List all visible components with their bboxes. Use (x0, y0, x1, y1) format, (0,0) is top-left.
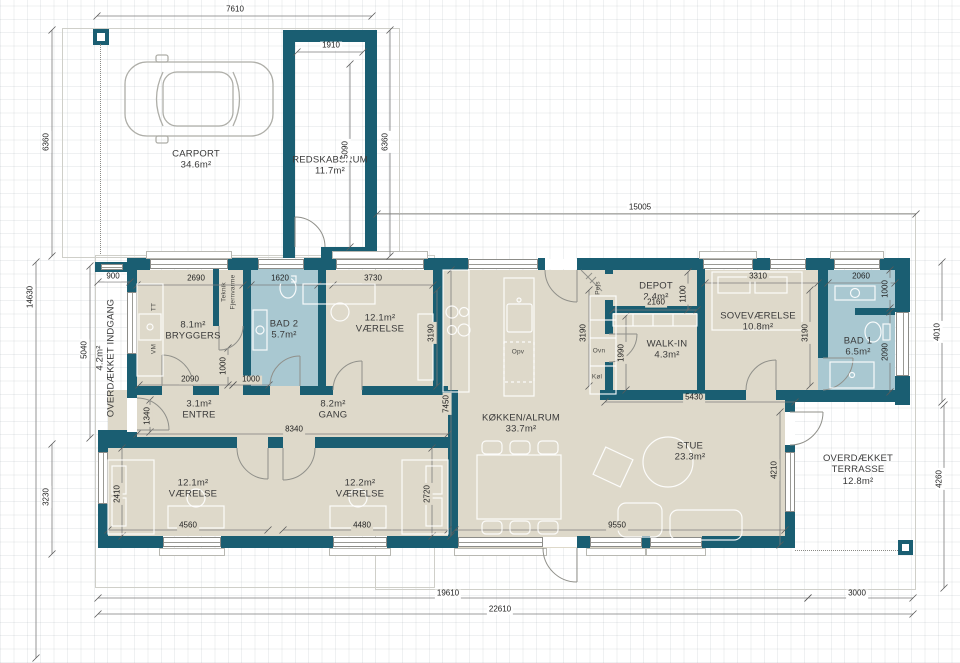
door-opening (162, 386, 193, 395)
dimension-label: 3190 (802, 322, 811, 344)
window-sill (332, 251, 428, 259)
wall-segment (785, 512, 795, 548)
wall-segment (753, 258, 770, 270)
dimension-label: 3190 (428, 322, 437, 344)
wall-segment (785, 445, 795, 452)
wall-segment (785, 400, 795, 412)
wall-segment (538, 258, 545, 270)
window-sill (454, 548, 547, 556)
wall-segment (702, 536, 795, 548)
room-label-overdaekket-terrasse: OVERDÆKKETTERRASSE12.8m² (823, 453, 893, 487)
dimension-label: 1000 (240, 376, 262, 385)
room-label-bad-1: BAD 16.5m² (844, 336, 872, 359)
door-opening (545, 259, 577, 269)
wall-segment (137, 386, 162, 395)
dimension-label: 2090 (179, 376, 201, 385)
dimension-label: 2160 (645, 299, 667, 308)
wall-segment (365, 30, 377, 247)
dimension-label: 19610 (435, 590, 461, 599)
door-opening (219, 386, 243, 395)
room-label-vaerelse-nv: 12.1m²VÆRELSE (356, 313, 404, 336)
dimension-label: 6360 (43, 131, 52, 153)
dimension-label: 1990 (618, 342, 627, 364)
wall-segment (448, 536, 458, 548)
window-sill (699, 251, 757, 259)
window (468, 259, 538, 269)
window (98, 452, 108, 504)
wall-segment (424, 258, 468, 270)
dimension-label: 14630 (27, 284, 36, 310)
window-sill (830, 251, 884, 259)
window (458, 537, 543, 547)
appliance-label-pejs: Pejs (595, 281, 602, 294)
wall-segment (283, 30, 295, 247)
window-sill (646, 548, 706, 556)
wall-segment (127, 258, 137, 292)
dimension-label: 3310 (747, 273, 769, 282)
dimension-label: 7450 (443, 393, 452, 415)
appliance-label-ovn: Ovn (593, 348, 606, 355)
dimension-label: 1000 (220, 355, 229, 377)
dimension-label: 3000 (846, 590, 868, 599)
dimension-label: 2720 (424, 483, 433, 505)
dimension-label: 3730 (362, 275, 384, 284)
wall-segment (108, 437, 237, 448)
carport-post (93, 29, 109, 45)
dimension-label: 4260 (936, 468, 945, 490)
wall-segment (600, 390, 746, 400)
wall-segment (98, 536, 163, 548)
dimension-label: 6360 (382, 131, 391, 153)
window (896, 312, 909, 376)
door-opening (605, 334, 613, 362)
wall-segment (795, 390, 910, 402)
dimension-label: 4560 (177, 522, 199, 531)
window-sill (146, 251, 232, 259)
wall-segment (895, 258, 910, 312)
dimension-label: 9550 (606, 522, 628, 531)
wall-segment (221, 536, 333, 548)
room-label-stue: STUE23.3m² (675, 441, 706, 464)
dotted-boundary (100, 44, 101, 254)
wall-segment (776, 390, 795, 400)
window-sill (159, 548, 225, 556)
dimension-label: 5090 (342, 139, 351, 161)
wall-segment (577, 536, 590, 548)
dimension-label: 1100 (680, 283, 689, 304)
dimension-label: 1340 (144, 405, 153, 427)
wall-segment (213, 268, 219, 326)
window (703, 259, 753, 269)
wall-segment (300, 386, 326, 395)
window (336, 259, 424, 269)
dimension-label: 4010 (934, 321, 943, 343)
wall-segment (193, 386, 219, 395)
dimension-label: 7610 (224, 6, 246, 15)
wall-segment (127, 354, 137, 398)
dimension-label: 15005 (627, 204, 653, 213)
window (834, 259, 880, 269)
wall-segment (697, 268, 705, 395)
window (650, 537, 702, 547)
wall-segment (315, 437, 448, 448)
room-label-overdaekket-indgang: 4.2m²OVERDÆKKET INDGANG (95, 299, 118, 418)
floor-plan-canvas: CARPORT34.6m²REDSKABSRUM11.7m²8.1m²BRYGG… (0, 0, 960, 663)
door-opening (127, 398, 137, 432)
dimension-label: 1000 (882, 278, 891, 300)
appliance-label-fjernvarme: Fjernvarme (230, 275, 237, 310)
door-opening (543, 537, 577, 547)
room-label-vaerelse-sv: 12.1m²VÆRELSE (169, 478, 217, 501)
room-label-gang: 8.2m²GANG (319, 399, 348, 422)
window (163, 537, 221, 547)
wall-segment (243, 386, 270, 395)
room-label-walk-in: WALK-IN4.3m² (647, 339, 688, 362)
wall-segment (577, 258, 703, 270)
dimension-label: 3230 (43, 486, 52, 508)
dimension-label: 5430 (683, 394, 705, 403)
window (101, 264, 123, 270)
dimension-label: 2060 (850, 273, 872, 282)
wall-segment (268, 437, 283, 448)
dimension-label: 5040 (81, 339, 90, 361)
wall-segment (283, 247, 295, 258)
wall-segment (98, 430, 108, 452)
wall-segment (318, 268, 326, 390)
wall-segment (895, 376, 910, 405)
room-label-bad-2: BAD 25.7m² (270, 319, 298, 342)
appliance-label-opv: Opv (512, 349, 525, 356)
dimension-label: 3190 (580, 322, 589, 344)
door-opening (746, 390, 776, 400)
dimension-label: 8340 (283, 426, 305, 435)
dimension-label: 1910 (320, 42, 342, 51)
floor-area (108, 390, 448, 536)
dimension-label: 1620 (269, 275, 291, 284)
dimension-label: 2090 (882, 341, 891, 363)
appliance-label-teknik: Teknik (221, 282, 228, 302)
window (333, 537, 387, 547)
room-label-entre: 3.1m²ENTRE (182, 399, 215, 422)
window (785, 452, 795, 512)
window-sill (586, 548, 646, 556)
wall-segment (642, 536, 650, 548)
room-label-bryggers: 8.1m²BRYGGERS (165, 320, 220, 343)
door-opening (785, 412, 795, 445)
dimension-label: 4480 (351, 522, 373, 531)
room-label-sovevaerelse: SOVEVÆRELSE10.8m² (720, 311, 796, 334)
dimension-label: 4210 (771, 459, 780, 481)
appliance-label-vm: VM (151, 344, 158, 354)
room-label-carport: CARPORT34.6m² (172, 149, 220, 172)
wall-segment (855, 308, 895, 315)
window (770, 259, 806, 269)
wall-segment (325, 386, 333, 395)
door-opening (818, 358, 828, 390)
room-label-koekken-alrum: KØKKEN/ALRUM33.7m² (482, 413, 560, 436)
room-label-redskabsrum: REDSKABSRUM11.7m² (292, 155, 368, 178)
appliance-label-tt: TT (151, 303, 158, 311)
dimension-label: 900 (104, 273, 121, 282)
appliance-label-køl: Køl (592, 374, 602, 381)
dimension-label: 22610 (487, 606, 513, 615)
terrace-post (898, 540, 913, 555)
window-sill (329, 548, 391, 556)
window (258, 259, 304, 269)
door-opening (333, 386, 362, 395)
wall-segment (818, 268, 828, 358)
dimension-label: 2410 (114, 483, 123, 505)
wall-segment (243, 268, 251, 390)
door-opening (270, 386, 300, 395)
door-opening (605, 274, 613, 300)
dimension-label: 2690 (185, 275, 207, 284)
room-label-vaerelse-so: 12.2m²VÆRELSE (336, 478, 384, 501)
window (127, 292, 137, 354)
window (150, 259, 228, 269)
window (590, 537, 642, 547)
dotted-boundary (795, 550, 898, 551)
